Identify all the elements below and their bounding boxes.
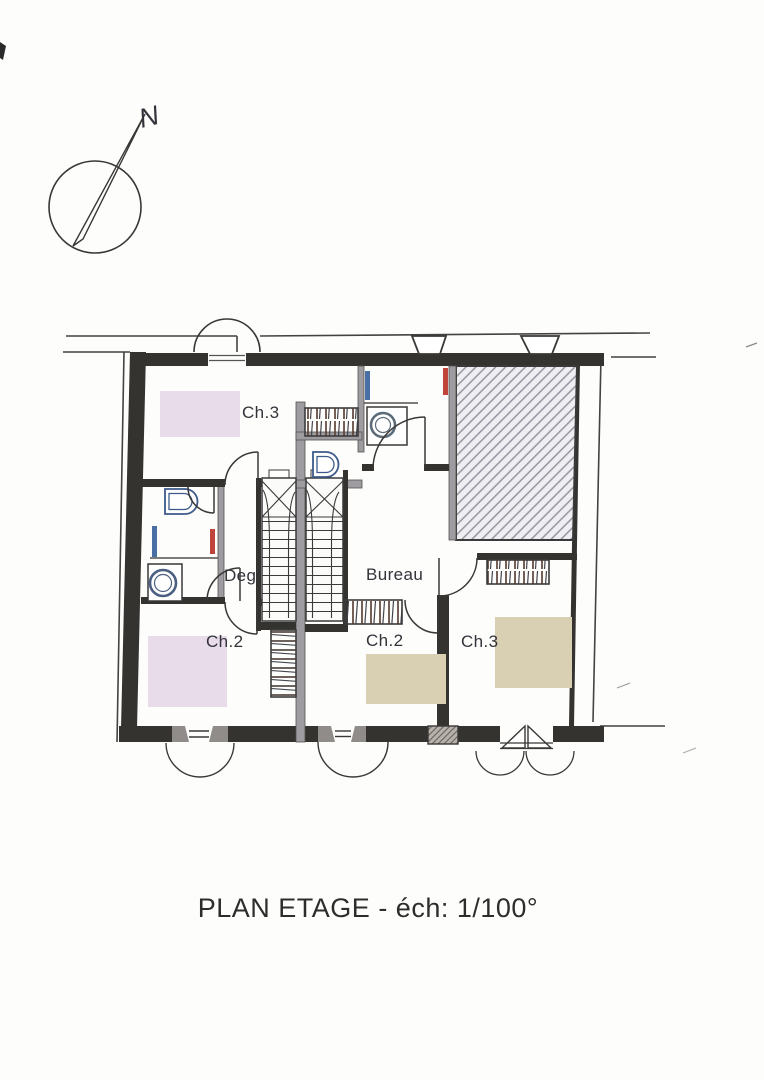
wardrobe xyxy=(305,408,358,436)
radiator-red xyxy=(210,529,215,554)
door-arc xyxy=(225,602,257,634)
compass-north-label: N xyxy=(136,100,163,134)
south-wall xyxy=(119,726,172,742)
plan-title: PLAN ETAGE - éch: 1/100° xyxy=(0,893,736,924)
door-arc xyxy=(225,452,258,485)
shutter-arc xyxy=(166,743,234,777)
room-label-bedroom-bottom-middle: Ch.2 xyxy=(366,631,404,650)
door-arc xyxy=(405,600,438,633)
room-label-bedroom-bottom-right: Ch.3 xyxy=(461,632,499,651)
west-wall xyxy=(121,352,146,728)
radiator-blue xyxy=(365,371,370,400)
attic-void-hatch xyxy=(456,366,577,540)
chimney-icon xyxy=(412,336,446,354)
toilet-icon xyxy=(313,452,339,477)
bed xyxy=(366,654,446,704)
radiator-red xyxy=(443,368,448,395)
washbasin-icon xyxy=(367,407,407,445)
shutter-arc xyxy=(318,742,388,777)
stair-spine-wall xyxy=(296,402,305,742)
wardrobe xyxy=(487,560,549,584)
door-arc xyxy=(439,558,477,596)
north-wall xyxy=(137,353,208,366)
north-arrow-icon xyxy=(73,114,145,246)
room-label-bedroom-top-left: Ch.3 xyxy=(242,403,280,422)
chimney-bumps xyxy=(412,336,559,354)
east-outer-wall-line xyxy=(593,357,601,722)
room-label-hallway: Degt xyxy=(224,566,262,585)
wardrobe xyxy=(271,630,296,697)
room-label-bedroom-bottom-left: Ch.2 xyxy=(206,632,244,651)
bed xyxy=(160,391,240,437)
room-label-office: Bureau xyxy=(366,565,423,584)
radiator-blue xyxy=(152,526,157,557)
shower-icon xyxy=(148,564,182,601)
wardrobe xyxy=(345,600,402,624)
shutter-arc xyxy=(476,751,524,775)
north-compass: N xyxy=(49,100,163,253)
shutter-arc xyxy=(526,751,574,775)
masonry-pier xyxy=(428,726,458,744)
scanned-floor-plan-page: N xyxy=(0,0,764,1080)
bed xyxy=(495,617,572,688)
chimney-icon xyxy=(521,336,559,354)
window xyxy=(166,726,234,777)
